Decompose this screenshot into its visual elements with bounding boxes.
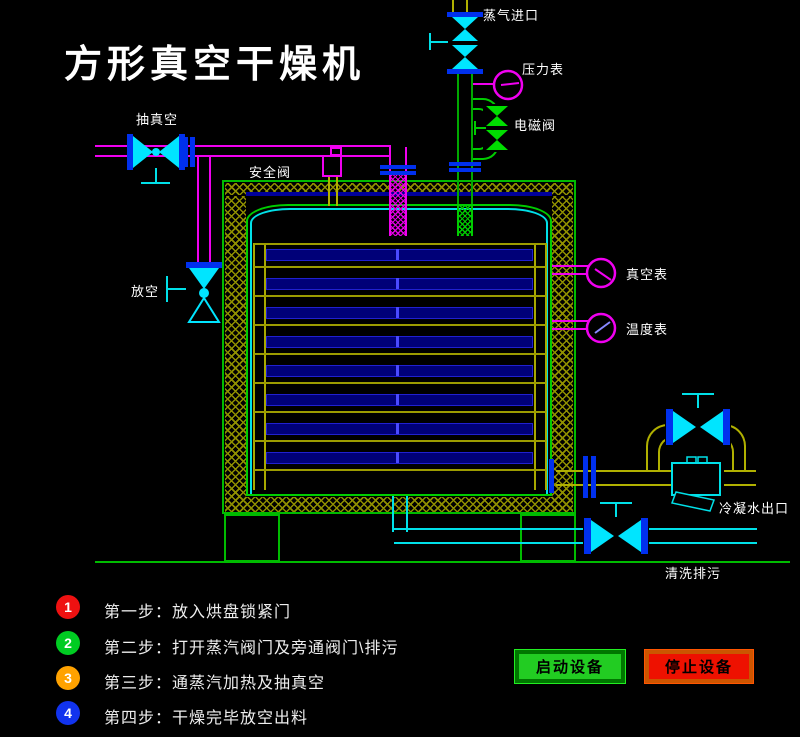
- vent-valve: [186, 262, 222, 326]
- flange: [190, 137, 195, 167]
- heating-plate: [254, 243, 546, 245]
- heating-plate: [254, 324, 546, 326]
- flange: [449, 162, 481, 166]
- safety-valve-stem: [328, 176, 338, 206]
- valve-stem: [168, 288, 186, 290]
- step-text-4: 第四步：干燥完毕放空出料: [104, 704, 308, 728]
- temperature-gauge: [584, 311, 618, 345]
- valve-stem: [697, 395, 699, 408]
- tray-joint: [396, 307, 399, 318]
- tray-joint: [396, 452, 399, 463]
- step-text-2: 第二步：打开蒸汽阀门及旁通阀门\排污: [104, 634, 398, 658]
- start-device-label: 启动设备: [519, 654, 621, 679]
- valve-stem: [476, 127, 486, 129]
- valve-stem: [431, 41, 448, 43]
- bypass-valve: [665, 407, 731, 447]
- gauge-tap: [552, 265, 588, 275]
- condensate-pipe: [556, 470, 676, 486]
- heating-plate: [254, 382, 546, 384]
- heating-plate: [254, 440, 546, 442]
- stop-device-label: 停止设备: [649, 654, 749, 679]
- tray-joint: [396, 278, 399, 289]
- tray: [266, 394, 533, 406]
- heating-plate: [254, 469, 546, 471]
- flush-pipe: [649, 528, 757, 544]
- tray: [266, 278, 533, 290]
- tray-rack-left: [253, 243, 255, 490]
- tray: [266, 423, 533, 435]
- flange: [549, 459, 554, 493]
- step-badge-1: 1: [56, 595, 80, 619]
- valve-handle: [682, 393, 714, 395]
- start-device-button[interactable]: 启动设备: [514, 649, 626, 684]
- vacuum-line-label: 抽真空: [136, 109, 178, 128]
- valve-handle: [141, 182, 170, 184]
- tray: [266, 307, 533, 319]
- vacuum-valve: [127, 134, 185, 170]
- tray: [266, 365, 533, 377]
- safety-valve-label: 安全阀: [249, 162, 291, 181]
- heating-plate: [254, 353, 546, 355]
- pressure-gauge: [491, 68, 525, 102]
- steam-inlet-label: 蒸气进口: [483, 5, 539, 24]
- step-badge-2: 2: [56, 631, 80, 655]
- vessel-insulation-right: [552, 196, 573, 512]
- valve-stem: [615, 504, 617, 517]
- valve-handle: [600, 502, 632, 504]
- gauge-stem: [473, 83, 493, 85]
- step-badge-3: 3: [56, 666, 80, 690]
- heating-plate: [254, 295, 546, 297]
- step-badge-4: 4: [56, 701, 80, 725]
- drain-pipe-drop: [392, 496, 408, 532]
- flange: [583, 456, 588, 498]
- page-title: 方形真空干燥机: [64, 33, 365, 88]
- tray: [266, 249, 533, 261]
- step-text-1: 第一步：放入烘盘锁紧门: [104, 598, 291, 622]
- solenoid-valve: [483, 104, 511, 152]
- tray-rack-right: [545, 243, 547, 490]
- vacuum-gauge-label: 真空表: [626, 264, 668, 283]
- steam-trap: [668, 450, 726, 514]
- condensate-outlet-label: 冷凝水出口: [719, 498, 789, 517]
- tray-joint: [396, 249, 399, 260]
- tray-joint: [396, 336, 399, 347]
- steam-inlet-valve: [447, 12, 483, 74]
- flange: [449, 168, 481, 172]
- steam-pipe: [457, 74, 473, 204]
- condensate-pipe-out: [724, 470, 756, 486]
- stop-device-button[interactable]: 停止设备: [644, 649, 754, 684]
- pressure-gauge-label: 压力表: [522, 59, 564, 78]
- heating-plate: [254, 411, 546, 413]
- heating-plate: [254, 266, 546, 268]
- temp-gauge-label: 温度表: [626, 319, 668, 338]
- tray: [266, 452, 533, 464]
- valve-stem: [155, 168, 157, 182]
- safety-valve-body: [322, 155, 342, 177]
- solenoid-valve-label: 电磁阀: [514, 115, 556, 134]
- vacuum-gauge: [584, 256, 618, 290]
- tray: [266, 336, 533, 348]
- safety-valve-cap: [330, 147, 342, 156]
- vacuum-nozzle: [389, 175, 407, 236]
- tray-rack-right-inner: [534, 243, 536, 490]
- vessel-insulation-left: [225, 196, 246, 512]
- vent-pipe: [197, 155, 211, 263]
- drain-valve: [583, 516, 649, 556]
- step-text-3: 第三步：通蒸汽加热及抽真空: [104, 669, 325, 693]
- valve-handle: [429, 33, 431, 50]
- tray-joint: [396, 394, 399, 405]
- tray-joint: [396, 423, 399, 434]
- drain-pipe: [394, 528, 586, 544]
- steam-nozzle: [457, 204, 473, 236]
- flush-drain-label: 清洗排污: [665, 563, 721, 582]
- gauge-tap: [552, 320, 588, 330]
- flange: [591, 456, 596, 498]
- vessel-leg-left: [224, 514, 280, 562]
- vacuum-dryer-hmi: 方形真空干燥机 抽真空: [0, 0, 800, 737]
- tray-joint: [396, 365, 399, 376]
- vent-label: 放空: [131, 281, 159, 300]
- flange: [380, 165, 416, 169]
